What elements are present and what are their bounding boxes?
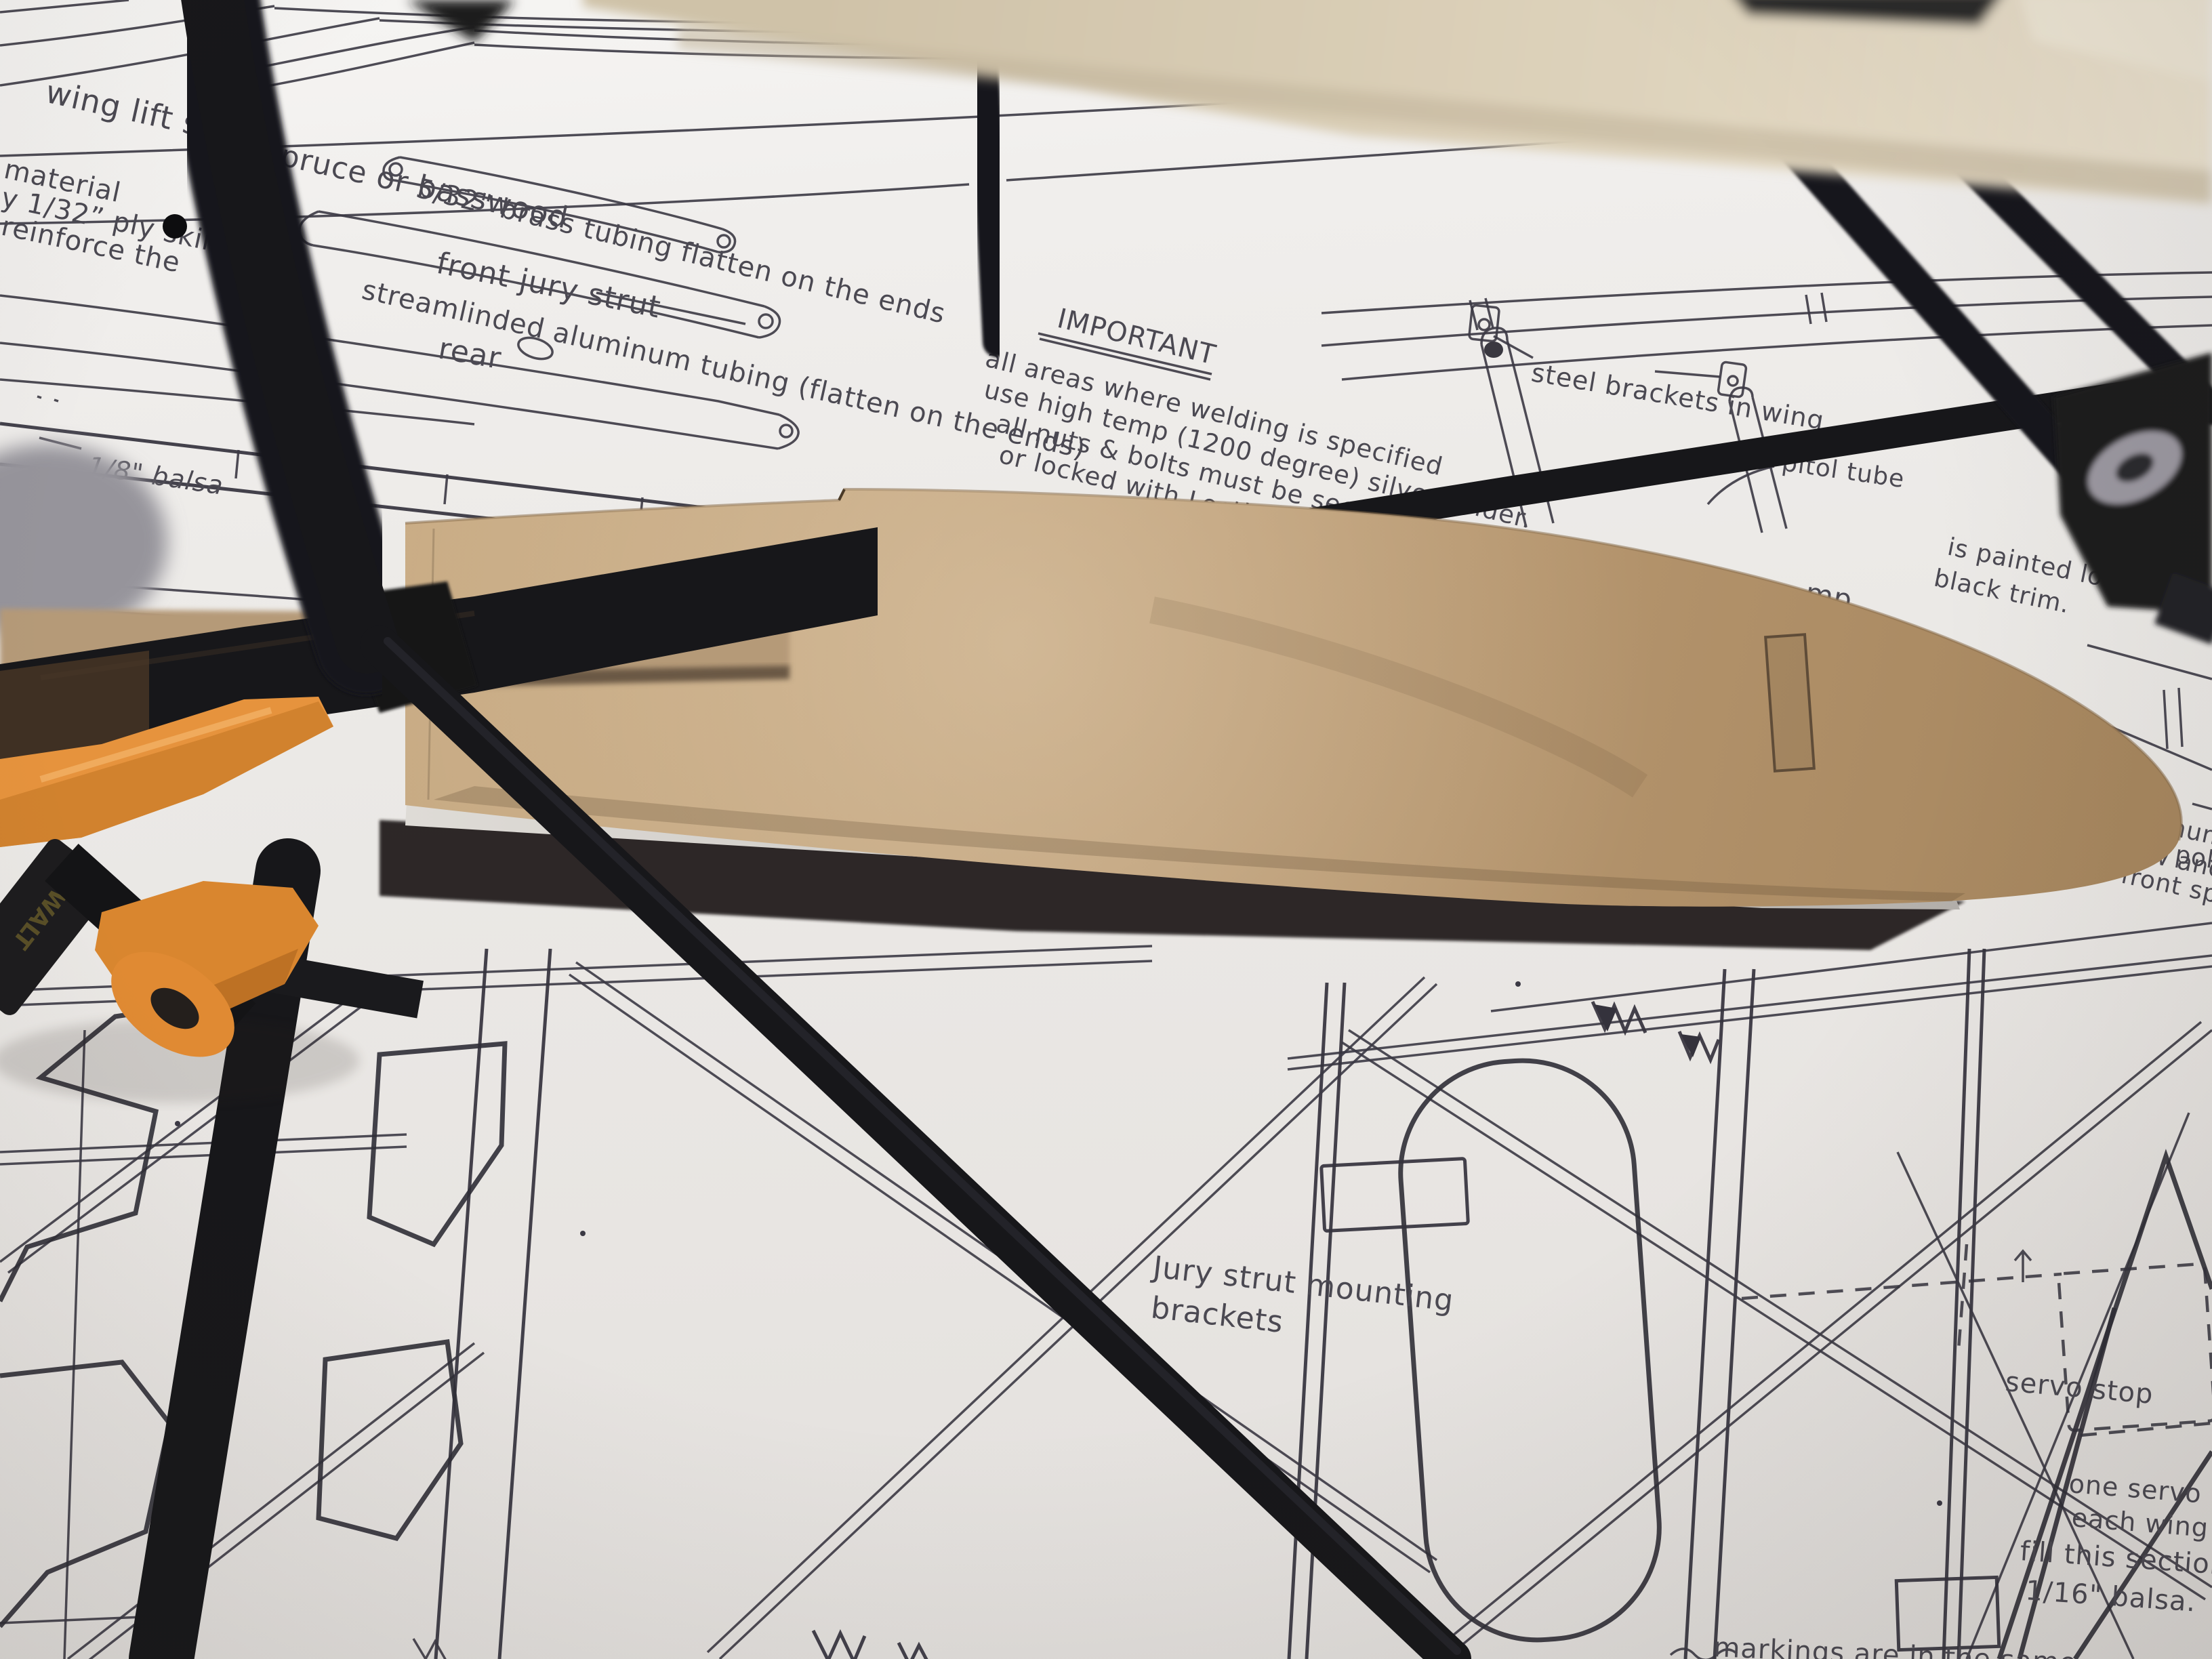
label-jury-mounting-2: brackets <box>1149 1290 1286 1340</box>
label-markings: markings are in the same <box>1713 1632 2078 1659</box>
bar-clamp: DEWALT <box>0 697 424 1103</box>
wingtip-slot-cutout <box>1765 634 1814 771</box>
bolt-head <box>163 214 187 239</box>
label-steel-brackets: steel brackets in wing <box>1530 357 1827 436</box>
label-one-servo-2: each wing <box>2070 1502 2209 1543</box>
label-servo-stop: servo stop <box>2004 1366 2154 1410</box>
label-rear: rear <box>436 331 504 376</box>
photo-composition: wing lift strut spruce or basswood mater… <box>0 0 2212 1659</box>
foreground-wood-beam <box>583 0 2212 205</box>
tube-joint-cluster <box>2053 352 2212 644</box>
workshop-photo: wing lift strut spruce or basswood mater… <box>0 0 2212 1659</box>
label-fill-section-2: 1/16" balsa. <box>2024 1575 2197 1618</box>
